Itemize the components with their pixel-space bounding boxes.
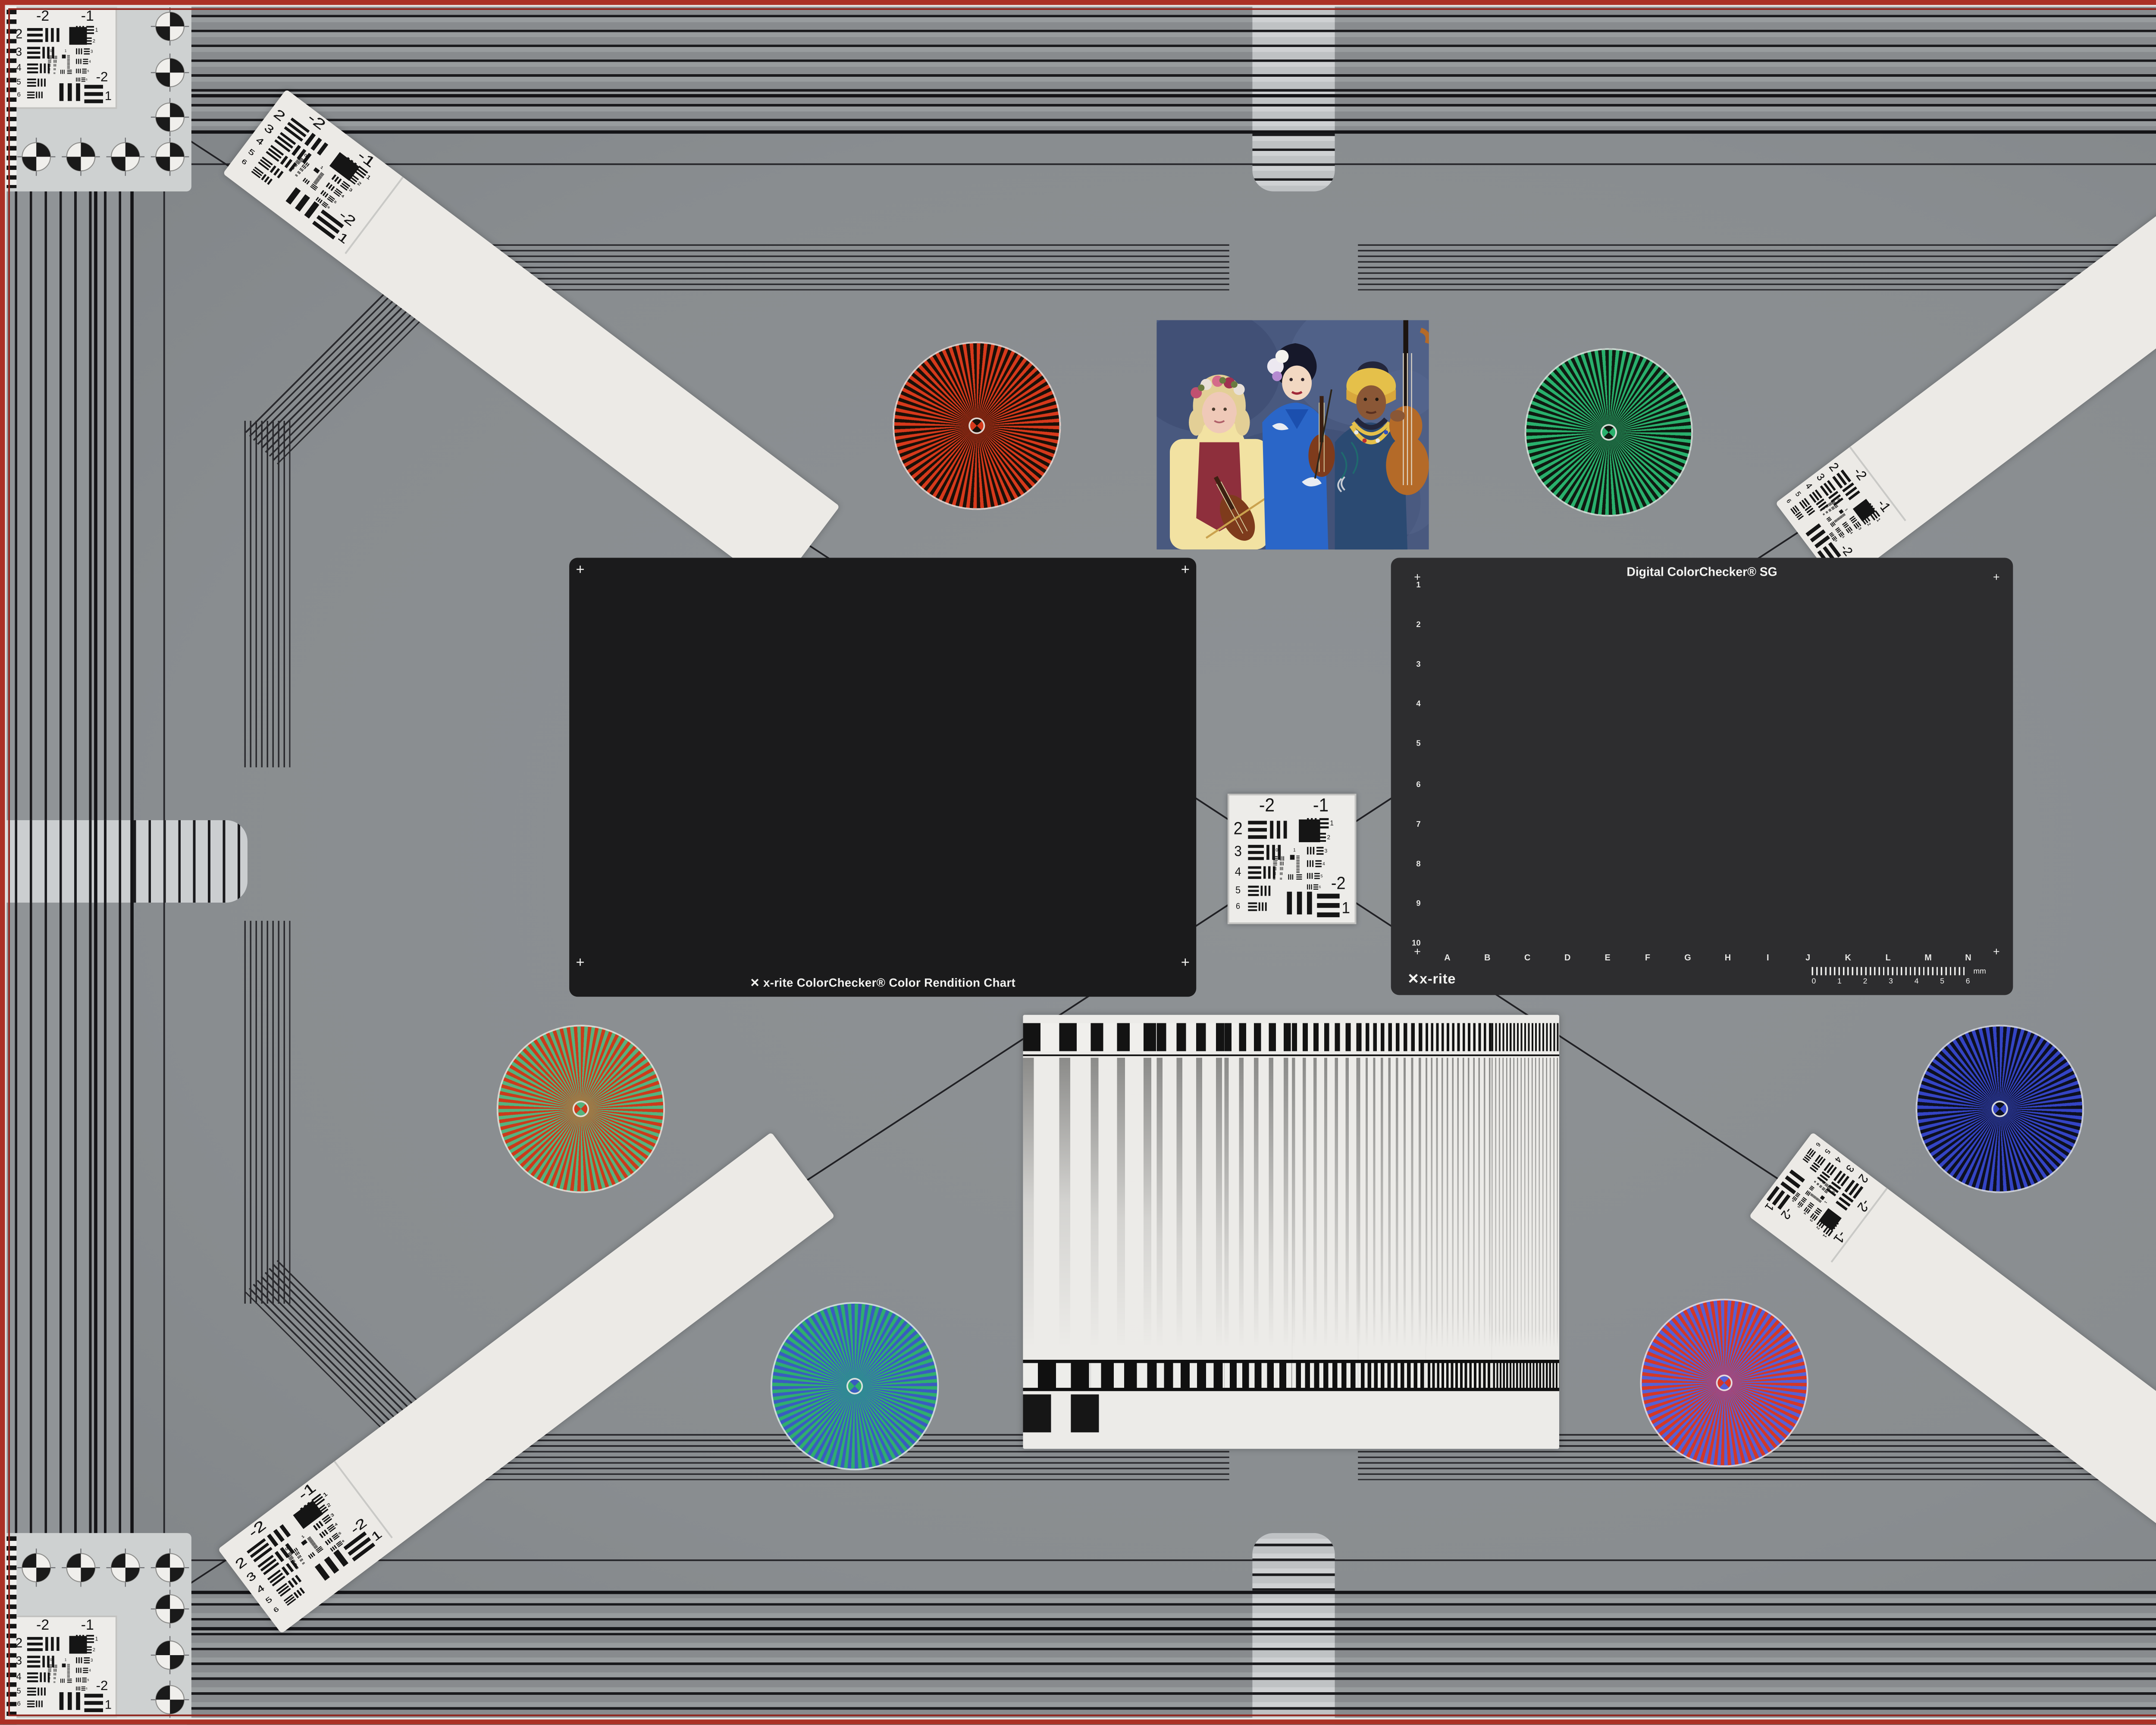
siemens-star-red-black — [893, 342, 1061, 510]
svg-text:1: 1 — [105, 1698, 112, 1712]
svg-text:5: 5 — [333, 200, 337, 204]
ruler-number: 0 — [1811, 977, 1816, 985]
svg-text:5: 5 — [1235, 884, 1241, 896]
svg-text:4: 4 — [1235, 865, 1241, 878]
fiducial-circle — [16, 137, 56, 177]
sweep-segment — [1425, 1058, 1492, 1360]
sweep-segment — [1358, 1058, 1425, 1360]
sg-ruler: 0123456 mm — [1811, 967, 1993, 988]
svg-text:4: 4 — [1322, 861, 1325, 866]
sg-row-label: 8 — [1404, 861, 1420, 869]
ruler-number: 4 — [1915, 977, 1919, 985]
frequency-bar-segment — [1425, 1023, 1492, 1051]
perforation-strip — [3, 1536, 16, 1724]
corner-resolution-target: -2-123456123456-2101 — [10, 1615, 117, 1718]
xrite-logo: ✕x-rite — [1407, 970, 1456, 988]
sweep-segment — [1023, 1058, 1090, 1360]
star-center-dot — [968, 417, 986, 435]
svg-text:1: 1 — [65, 49, 67, 53]
wedge-black-block — [1023, 1394, 1051, 1432]
ruler-number: 2 — [1863, 977, 1868, 985]
fiducial-circle — [149, 52, 189, 92]
svg-text:-1: -1 — [1830, 1228, 1850, 1247]
svg-text:1: 1 — [1875, 517, 1881, 523]
svg-text:-2: -2 — [348, 1515, 370, 1537]
sg-col-label: H — [1708, 954, 1748, 966]
registration-cross-icon: + — [1181, 563, 1190, 577]
sweep-segment — [1291, 1058, 1358, 1360]
svg-text:-1: -1 — [81, 8, 94, 24]
star-center-dot — [571, 1100, 590, 1118]
colorchecker-classic-chart: ✕ x-rite ColorChecker® Color Rendition C… — [569, 558, 1196, 997]
svg-text:-2: -2 — [36, 1617, 49, 1633]
sg-col-label: F — [1628, 954, 1668, 966]
svg-text:-2: -2 — [1851, 464, 1870, 483]
svg-text:1: 1 — [1341, 898, 1350, 916]
frequency-bar-segment — [1224, 1363, 1291, 1388]
svg-text:5: 5 — [17, 78, 21, 86]
svg-text:2: 2 — [1866, 522, 1872, 527]
sg-col-label: C — [1507, 954, 1548, 966]
svg-text:3: 3 — [1234, 843, 1242, 859]
ruler-ticks — [1811, 967, 1967, 975]
svg-text:4: 4 — [340, 194, 345, 199]
sg-col-label: J — [1788, 954, 1828, 966]
svg-text:-2: -2 — [1837, 542, 1855, 559]
ruler-numbers: 0123456 — [1811, 977, 1970, 985]
svg-text:1: 1 — [95, 27, 98, 33]
svg-text:0: 0 — [1275, 847, 1278, 853]
sg-row-label: 4 — [1404, 702, 1420, 710]
fiducial-circle — [106, 1548, 145, 1587]
svg-text:1: 1 — [1844, 508, 1849, 511]
fiducial-circle — [149, 1634, 189, 1674]
svg-text:5: 5 — [1842, 536, 1845, 539]
fiducial-circle — [149, 1679, 189, 1719]
svg-text:2: 2 — [93, 38, 95, 44]
ruler-number: 5 — [1940, 977, 1944, 985]
svg-text:5: 5 — [87, 1678, 89, 1682]
sweep-segment — [1224, 1058, 1291, 1360]
svg-text:6: 6 — [1319, 885, 1321, 889]
svg-text:1: 1 — [365, 174, 372, 181]
ruler-number: 6 — [1966, 977, 1970, 985]
sg-col-label: E — [1588, 954, 1628, 966]
svg-text:6: 6 — [272, 1606, 280, 1614]
sg-col-label: M — [1908, 954, 1948, 966]
svg-text:-1: -1 — [1313, 795, 1329, 815]
registration-cross-icon: + — [1181, 956, 1190, 970]
svg-text:-2: -2 — [36, 8, 49, 24]
registration-cross-icon: + — [576, 563, 584, 577]
svg-text:2: 2 — [232, 1554, 250, 1572]
sg-col-label: N — [1948, 954, 1988, 966]
svg-text:-2: -2 — [96, 1678, 108, 1693]
svg-text:5: 5 — [1794, 490, 1802, 498]
fiducial-circle — [106, 137, 145, 177]
svg-text:4: 4 — [89, 1668, 91, 1672]
star-center-dot — [845, 1377, 864, 1396]
center-resolution-target: -2-123456123456-2101 — [1228, 794, 1356, 924]
colorchecker-sg-chart: Digital ColorChecker® SG 12345678910 ABC… — [1391, 558, 2013, 995]
fiducial-circle — [149, 97, 189, 136]
test-chart-photo: -2-123456123456-2101-2-123456123456-2101… — [0, 0, 2156, 1725]
svg-text:5: 5 — [1321, 874, 1323, 878]
frequency-bar-segment — [1425, 1363, 1492, 1388]
ruler-number: 3 — [1889, 977, 1893, 985]
grayscale-step-wedge — [1023, 1394, 1559, 1432]
svg-text:3: 3 — [348, 188, 353, 193]
frequency-bar-segment — [1157, 1363, 1224, 1388]
svg-text:-2: -2 — [1331, 874, 1346, 893]
svg-text:0: 0 — [50, 49, 52, 53]
registration-cross-icon: + — [1993, 573, 2000, 584]
svg-text:-1: -1 — [81, 1617, 94, 1633]
perforation-strip — [3, 0, 16, 188]
siemens-star-blue-black — [1916, 1025, 2084, 1193]
star-center-dot — [1990, 1100, 2009, 1118]
svg-text:3: 3 — [244, 1569, 259, 1584]
frequency-bar-segment — [1023, 1363, 1090, 1388]
colorchecker-caption: ✕ x-rite ColorChecker® Color Rendition C… — [569, 975, 1196, 990]
sg-row-label: 5 — [1404, 742, 1420, 750]
registration-cross-icon: + — [1414, 573, 1421, 584]
svg-text:1: 1 — [105, 89, 112, 103]
registration-cross-icon: + — [1993, 947, 2000, 959]
frequency-bar-segment — [1090, 1023, 1157, 1051]
sweep-segment — [1090, 1058, 1157, 1360]
test-chart-scene: -2-123456123456-2101-2-123456123456-2101… — [0, 0, 2156, 1725]
svg-text:4: 4 — [254, 135, 266, 147]
registration-cross-icon: + — [576, 956, 584, 970]
svg-text:6: 6 — [240, 157, 248, 166]
colorchecker-title: ColorChecker® Color Rendition Chart — [793, 975, 1015, 990]
sg-column-labels: ABCDEFGHIJKLMN — [1427, 954, 1988, 966]
wedge-black-block — [1071, 1394, 1099, 1432]
svg-text:2: 2 — [15, 26, 22, 41]
svg-text:4: 4 — [334, 1522, 339, 1527]
sg-col-label: B — [1467, 954, 1507, 966]
svg-text:4: 4 — [1833, 1154, 1843, 1164]
xrite-logo-icon: ✕ — [750, 979, 760, 990]
registration-cross-icon: + — [1414, 947, 1421, 959]
svg-text:6: 6 — [1834, 539, 1837, 543]
svg-text:1: 1 — [301, 1534, 306, 1539]
fiducial-circle — [150, 137, 190, 177]
sweep-segment — [1492, 1058, 1559, 1360]
svg-text:3: 3 — [16, 1654, 22, 1667]
sg-col-label: L — [1868, 954, 1908, 966]
portrait-photo — [1156, 320, 1429, 549]
sg-row-labels: 12345678910 — [1404, 583, 1422, 949]
svg-text:3: 3 — [91, 49, 93, 54]
frequency-bar-segment — [1358, 1023, 1425, 1051]
sg-row-label: 6 — [1404, 781, 1420, 790]
frequency-bar-segment — [1291, 1023, 1358, 1051]
svg-text:5: 5 — [264, 1595, 274, 1606]
svg-text:2: 2 — [93, 1647, 95, 1653]
frequency-bar-segment — [1492, 1363, 1559, 1388]
separator-line — [1023, 1054, 1559, 1057]
svg-text:3: 3 — [91, 1658, 93, 1663]
siemens-star-red-blue — [1640, 1298, 1808, 1467]
frequency-bar-segment — [1358, 1363, 1425, 1388]
svg-text:6: 6 — [327, 206, 331, 210]
sg-col-label: A — [1427, 954, 1467, 966]
svg-text:4: 4 — [89, 59, 91, 63]
sweep-resolution-chart — [1023, 1015, 1559, 1449]
sg-row-label: 9 — [1404, 901, 1420, 909]
svg-text:5: 5 — [1823, 1148, 1832, 1155]
svg-text:1: 1 — [1824, 1200, 1828, 1204]
svg-text:6: 6 — [17, 91, 20, 98]
corner-resolution-target: -2-123456123456-2101 — [10, 6, 117, 109]
svg-text:-2: -2 — [1855, 1196, 1874, 1215]
svg-text:2: 2 — [1234, 819, 1243, 838]
colorchecker-brand: x-rite — [763, 975, 793, 990]
svg-text:6: 6 — [1814, 1141, 1822, 1148]
svg-text:5: 5 — [338, 1531, 342, 1535]
svg-text:2: 2 — [1327, 834, 1330, 841]
svg-text:-2: -2 — [96, 69, 108, 84]
svg-text:1: 1 — [369, 1527, 385, 1544]
star-center-dot — [1599, 423, 1618, 442]
sg-row-label: 2 — [1404, 622, 1420, 630]
fiducial-circle — [149, 1588, 189, 1628]
svg-text:1: 1 — [65, 1657, 67, 1662]
svg-text:4: 4 — [16, 1671, 22, 1682]
svg-text:3: 3 — [1325, 847, 1328, 853]
svg-text:5: 5 — [247, 147, 257, 158]
svg-text:6: 6 — [1785, 498, 1792, 504]
frequency-bar-segment — [1492, 1023, 1559, 1051]
sg-row-label: 3 — [1404, 662, 1420, 670]
svg-text:2: 2 — [271, 106, 288, 124]
sg-row-label: 7 — [1404, 821, 1420, 829]
siemens-star-red-green — [497, 1025, 665, 1193]
svg-text:6: 6 — [86, 78, 88, 82]
svg-text:1: 1 — [95, 1636, 98, 1642]
frequency-bar-segment — [1090, 1363, 1157, 1388]
siemens-star-green-black — [1525, 348, 1693, 516]
sg-grid — [1427, 583, 1988, 949]
sg-col-label: G — [1667, 954, 1708, 966]
svg-text:6: 6 — [17, 1700, 20, 1707]
svg-text:1: 1 — [1330, 820, 1333, 828]
svg-text:1: 1 — [320, 165, 324, 170]
frequency-bar-segment — [1157, 1023, 1224, 1051]
svg-text:3: 3 — [1843, 1163, 1856, 1174]
svg-text:6: 6 — [1236, 901, 1240, 911]
svg-text:5: 5 — [87, 69, 89, 73]
svg-text:3: 3 — [1814, 471, 1827, 483]
fiducial-circle — [149, 6, 189, 45]
svg-text:2: 2 — [326, 1502, 332, 1509]
svg-text:4: 4 — [1803, 481, 1814, 491]
svg-text:2: 2 — [15, 1635, 22, 1650]
svg-text:6: 6 — [342, 1539, 345, 1543]
siemens-star-green-blue — [771, 1302, 939, 1470]
svg-text:1: 1 — [1293, 847, 1296, 853]
xrite-logo-icon: ✕ — [1407, 970, 1420, 987]
frequency-bar-segment — [1291, 1363, 1358, 1388]
sg-col-label: I — [1748, 954, 1788, 966]
portrait-svg — [1156, 320, 1429, 549]
fiducial-circle — [61, 1548, 101, 1587]
fiducial-circle — [16, 1548, 56, 1587]
svg-text:-1: -1 — [1874, 496, 1894, 515]
fiducial-circle — [150, 1548, 190, 1587]
svg-text:2: 2 — [356, 180, 362, 187]
colorchecker-grid — [591, 577, 1175, 953]
fiducial-circle — [61, 137, 101, 177]
svg-text:1: 1 — [322, 1491, 329, 1498]
svg-text:-2: -2 — [1259, 795, 1275, 815]
svg-text:3: 3 — [16, 45, 22, 58]
sg-title: Digital ColorChecker® SG — [1391, 564, 2013, 578]
frequency-bar-segment — [1023, 1023, 1090, 1051]
svg-text:0: 0 — [50, 1657, 52, 1662]
svg-text:3: 3 — [262, 121, 277, 136]
frequency-bar-segment — [1224, 1023, 1291, 1051]
sweep-segment — [1157, 1058, 1224, 1360]
svg-text:4: 4 — [254, 1583, 266, 1596]
ruler-unit: mm — [1973, 967, 1986, 975]
sg-col-label: K — [1828, 954, 1868, 966]
svg-text:6: 6 — [86, 1687, 88, 1690]
svg-text:5: 5 — [17, 1687, 21, 1695]
ruler-number: 1 — [1837, 977, 1842, 985]
svg-text:4: 4 — [16, 62, 22, 73]
sg-col-label: D — [1548, 954, 1588, 966]
star-center-dot — [1715, 1374, 1733, 1392]
svg-text:3: 3 — [330, 1513, 335, 1518]
